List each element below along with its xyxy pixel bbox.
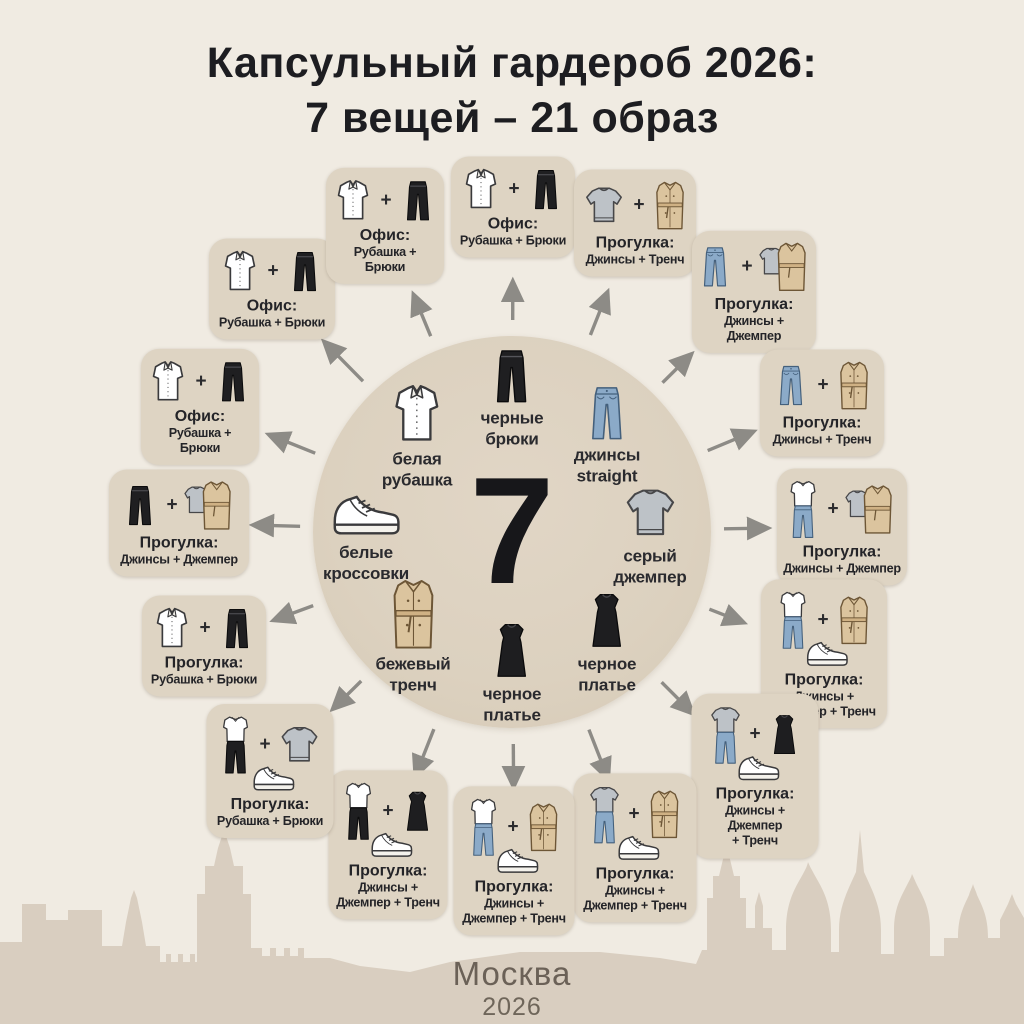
white-shirt-icon: [386, 383, 448, 445]
center-item-label: черное платье: [483, 684, 542, 725]
black-dress-icon: [581, 592, 633, 650]
sweater-icon: [619, 484, 681, 542]
center-item-black-dress-2: черное платье: [483, 622, 542, 725]
center-item-label: бежевый тренч: [375, 654, 450, 695]
center-item-black-pants: черные брюки: [481, 348, 544, 449]
center-item-gray-sweater: серый джемпер: [613, 484, 686, 587]
center-item-label: серый джемпер: [613, 546, 686, 587]
center-item-label: джинсы straight: [574, 445, 640, 486]
number-seven: 7: [470, 455, 555, 607]
capsule-wardrobe-infographic: Капсульный гардероб 2026: 7 вещей – 21 о…: [0, 0, 1024, 1024]
footer-city: Москва: [0, 955, 1024, 993]
center-item-white-shirt: белая рубашка: [382, 383, 452, 490]
center-item-label: белая рубашка: [382, 449, 452, 490]
trench-coat-icon: [384, 578, 442, 650]
black-pants-icon: [484, 348, 540, 404]
center-item-black-dress: черное платье: [578, 592, 637, 695]
infographic-title: Капсульный гардероб 2026: 7 вещей – 21 о…: [0, 36, 1024, 146]
footer-year: 2026: [0, 993, 1024, 1022]
center-item-beige-trench: бежевый тренч: [375, 578, 450, 695]
black-dress-icon: [486, 622, 538, 680]
title-line-2: 7 вещей – 21 образ: [0, 91, 1024, 146]
center-item-white-sneakers: белые кроссовки: [323, 490, 409, 584]
center-item-label: черные брюки: [481, 408, 544, 449]
title-line-1: Капсульный гардероб 2026:: [0, 36, 1024, 91]
sneaker-icon: [329, 490, 403, 539]
jeans-icon: [579, 385, 635, 441]
center-item-label: черное платье: [578, 654, 637, 695]
center-item-jeans: джинсы straight: [574, 385, 640, 486]
